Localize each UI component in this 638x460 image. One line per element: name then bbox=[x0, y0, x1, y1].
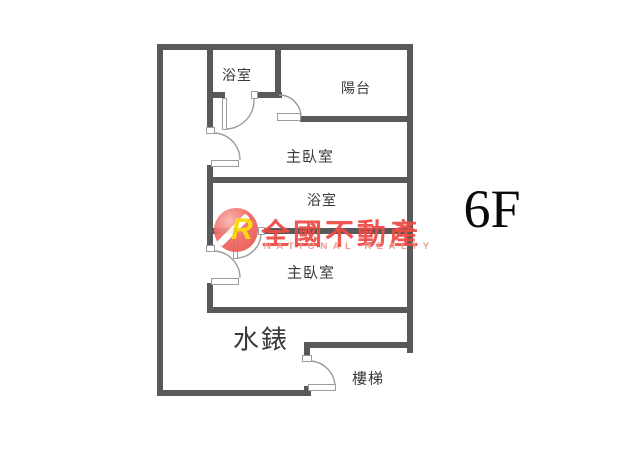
realty-logo-letter: R bbox=[228, 212, 256, 248]
door-leaf-master-mid bbox=[211, 278, 239, 285]
room-label-balcony: 陽台 bbox=[341, 78, 371, 98]
door-leaf-stairs bbox=[308, 384, 336, 391]
room-label-master-mid: 主臥室 bbox=[287, 262, 335, 283]
room-label-bathroom-top: 浴室 bbox=[222, 65, 252, 85]
room-label-stairs: 樓梯 bbox=[352, 368, 384, 389]
floor-number-label: 6F bbox=[463, 178, 520, 240]
floor-plan-canvas: 浴室 陽台 主臥室 浴室 主臥室 水錶 樓梯 6F R 全國不動產 NATION… bbox=[0, 0, 638, 460]
door-jamb-bathroom-top bbox=[251, 91, 258, 99]
room-label-bathroom-mid: 浴室 bbox=[307, 190, 337, 210]
door-arc-master-top bbox=[213, 133, 240, 160]
door-leaf-bathroom-top bbox=[222, 98, 227, 130]
door-leaf-balcony bbox=[277, 113, 301, 121]
door-arc-bathroom-top bbox=[227, 99, 254, 129]
realty-brand-subtitle: NATIONAL REALTY bbox=[264, 241, 434, 252]
room-label-master-top: 主臥室 bbox=[286, 146, 334, 167]
room-label-water-meter: 水錶 bbox=[233, 320, 289, 357]
door-jamb-stairs bbox=[302, 355, 312, 362]
door-leaf-master-top bbox=[211, 160, 239, 167]
door-jamb-master-mid bbox=[206, 245, 215, 252]
door-jamb-master-top bbox=[206, 127, 215, 134]
